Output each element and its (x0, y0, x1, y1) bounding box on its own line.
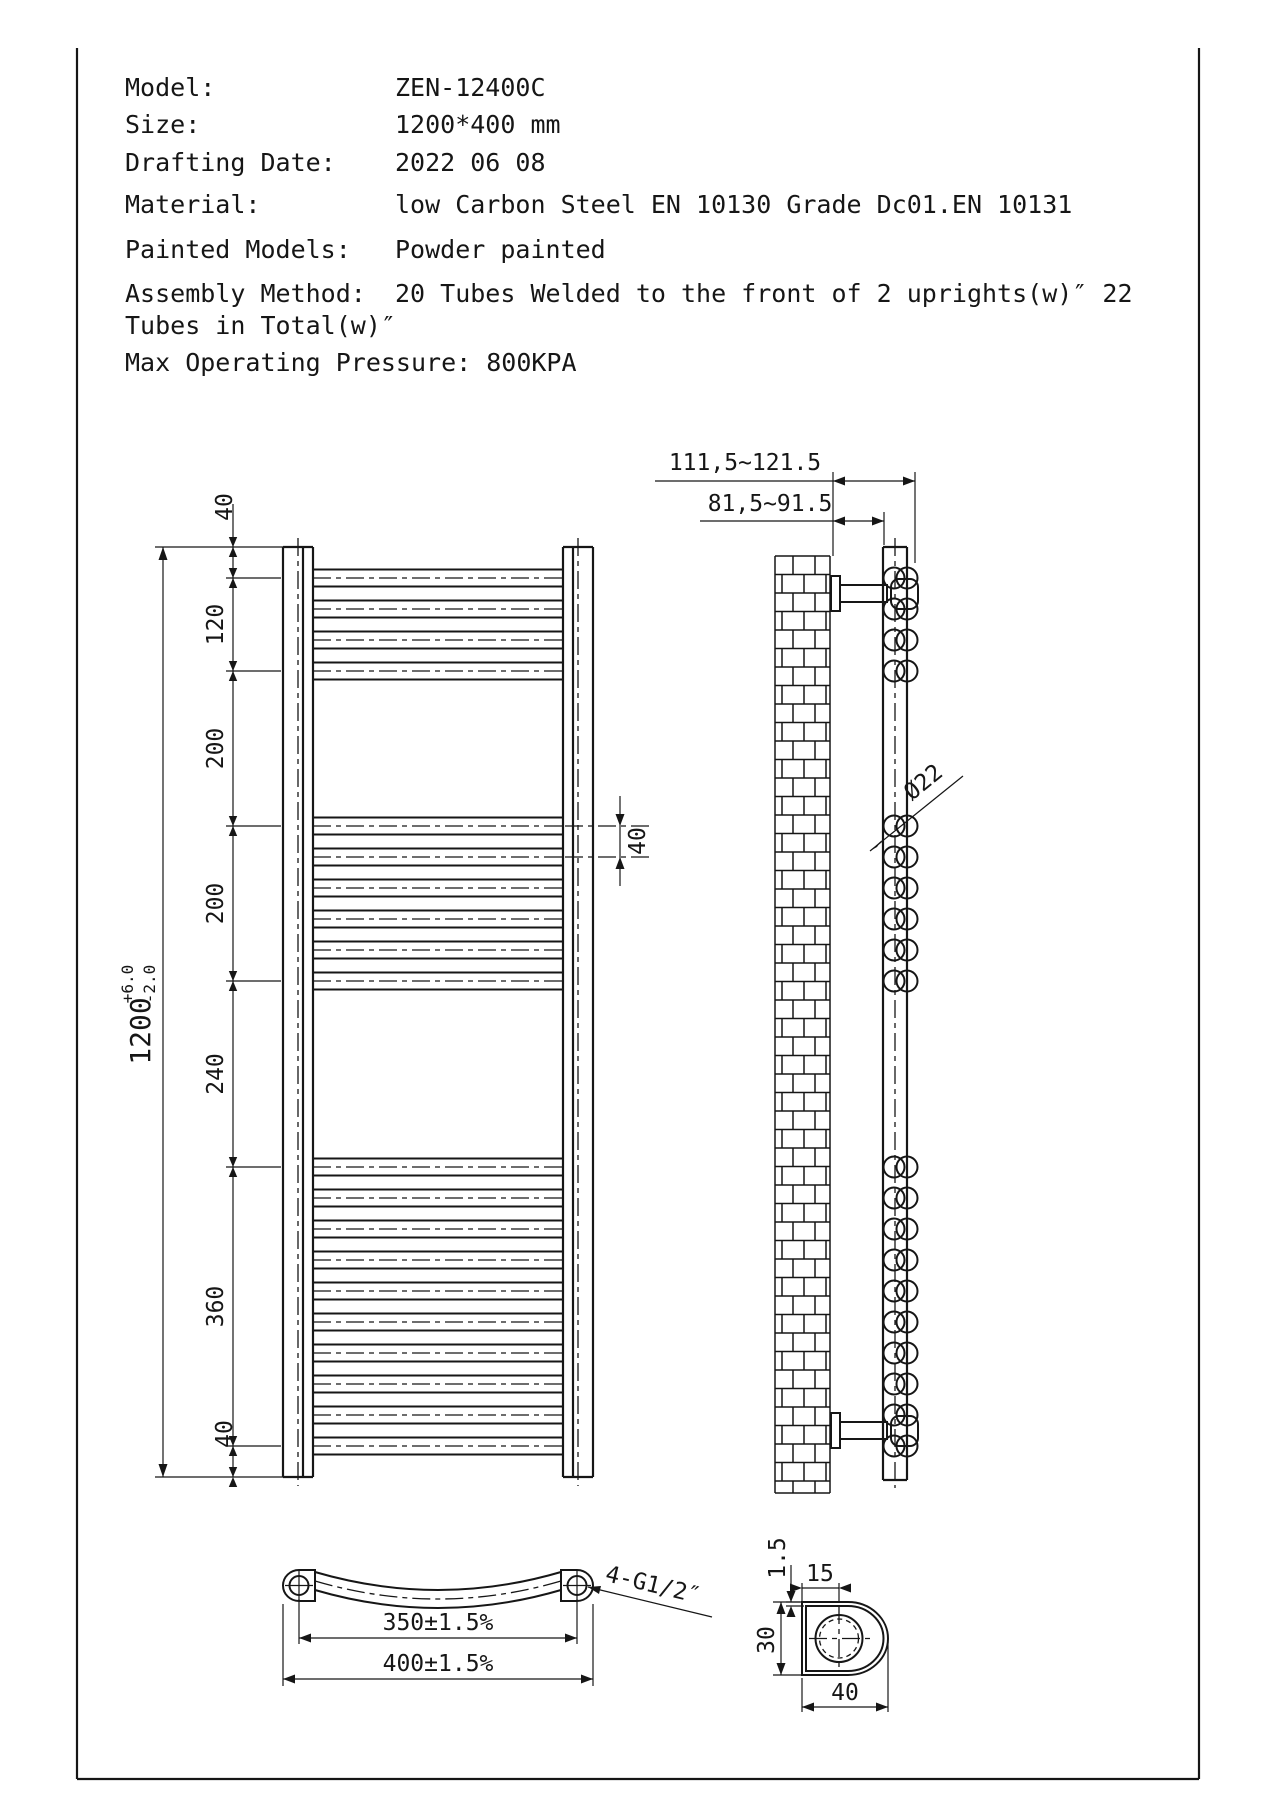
front-tubes (313, 570, 563, 1455)
spec-label: Painted Models: (125, 235, 351, 264)
spec-value-assembly: 20 Tubes Welded to the front of 2 uprigh… (395, 279, 1133, 308)
side-tube-circle (884, 940, 905, 961)
spec-label: Model: (125, 73, 215, 102)
spec-label: Drafting Date: (125, 148, 336, 177)
chain-dim-label: 40 (212, 1420, 238, 1448)
side-view: 111,5~121.5 81,5~91.5 Ø22 (655, 450, 963, 1493)
side-dims: 111,5~121.5 81,5~91.5 Ø22 (655, 450, 963, 851)
dim-overall-tol-minus: -2.0 (140, 965, 159, 1004)
spec-label: Size: (125, 110, 200, 139)
dim-overall-tol-plus: +6.0 (118, 965, 137, 1004)
front-view: 4012020020024036040 1200 +6.0 -2.0 40 (118, 493, 651, 1487)
chain-arrow (229, 981, 237, 991)
front-overall-dim: 1200 +6.0 -2.0 (118, 547, 168, 1477)
spec-header: Model: ZEN-12400C Size: 1200*400 mm Draf… (125, 73, 1133, 377)
detail-view: 15 1.5 30 40 (754, 1537, 888, 1712)
side-tube-circles (884, 568, 918, 1457)
chain-arrow (229, 1467, 237, 1477)
chain-dim-label: 200 (203, 883, 229, 925)
side-tube-circle (884, 1157, 905, 1178)
wall-brick-hatch (775, 556, 830, 1493)
dim-overall-height: 1200 (124, 997, 157, 1064)
dim-overall-width: 400±1.5% (383, 1651, 494, 1677)
spec-value-material: low Carbon Steel EN 10130 Grade Dc01.EN … (395, 190, 1072, 219)
chain-arrow (229, 568, 237, 578)
chain-arrow (229, 1477, 237, 1487)
side-tube-circle (884, 1250, 905, 1271)
chain-dim-label: 240 (203, 1053, 229, 1095)
dim-profile-width: 40 (831, 1680, 859, 1706)
side-tube-circle (884, 1188, 905, 1209)
spec-label: Material: (125, 190, 260, 219)
spec-value-model: ZEN-12400C (395, 73, 546, 102)
side-tube-circle (884, 1374, 905, 1395)
dim-hole-offset: 15 (806, 1561, 834, 1587)
chain-dim-label: 40 (212, 493, 238, 521)
chain-dim-label: 120 (203, 604, 229, 646)
wall-section (775, 556, 830, 1493)
technical-drawing: Model: ZEN-12400C Size: 1200*400 mm Draf… (0, 0, 1273, 1800)
chain-arrow (229, 1167, 237, 1177)
spec-value-paint: Powder painted (395, 235, 606, 264)
side-tube-circle (884, 1219, 905, 1240)
side-tube-circle (884, 1343, 905, 1364)
spec-assembly-continuation: Tubes in Total(w)″ (125, 311, 396, 340)
side-tube-circle (884, 878, 905, 899)
spec-label: Assembly Method: (125, 279, 366, 308)
chain-arrow (229, 537, 237, 547)
side-tube-circle (884, 847, 905, 868)
chain-dim-label: 200 (203, 728, 229, 770)
chain-arrow (229, 671, 237, 681)
dim-wall-to-tube-front: 111,5~121.5 (669, 450, 821, 476)
side-tube-circle (884, 909, 905, 930)
side-tube-circle (884, 661, 905, 682)
side-tube-circle (884, 630, 905, 651)
chain-arrow (229, 547, 237, 557)
spec-value-size: 1200*400 mm (395, 110, 561, 139)
spec-value-date: 2022 06 08 (395, 148, 546, 177)
spec-max-pressure: Max Operating Pressure: 800KPA (125, 348, 577, 377)
drawing-sheet: Model: ZEN-12400C Size: 1200*400 mm Draf… (0, 0, 1273, 1800)
dim-wall-thickness: 1.5 (765, 1537, 791, 1579)
plan-curved-tube-top (315, 1572, 561, 1590)
chain-arrow (229, 971, 237, 981)
chain-arrow (229, 1157, 237, 1167)
side-tube-circle (884, 1281, 905, 1302)
dim-tube-pitch: 40 (625, 827, 651, 855)
side-tube-circle (884, 1312, 905, 1333)
dim-centre-distance: 350±1.5% (383, 1610, 494, 1636)
chain-arrow (229, 578, 237, 588)
chain-dim-label: 360 (203, 1286, 229, 1328)
front-dimension-chain: 4012020020024036040 (155, 493, 284, 1487)
dim-profile-height: 30 (754, 1626, 780, 1654)
side-tube-circle (884, 971, 905, 992)
chain-arrow (229, 826, 237, 836)
chain-arrow (229, 661, 237, 671)
dim-wall-to-upright: 81,5~91.5 (708, 491, 833, 517)
plan-view: 350±1.5% 400±1.5% 4-G1/2″ (283, 1561, 712, 1686)
chain-arrow (229, 816, 237, 826)
